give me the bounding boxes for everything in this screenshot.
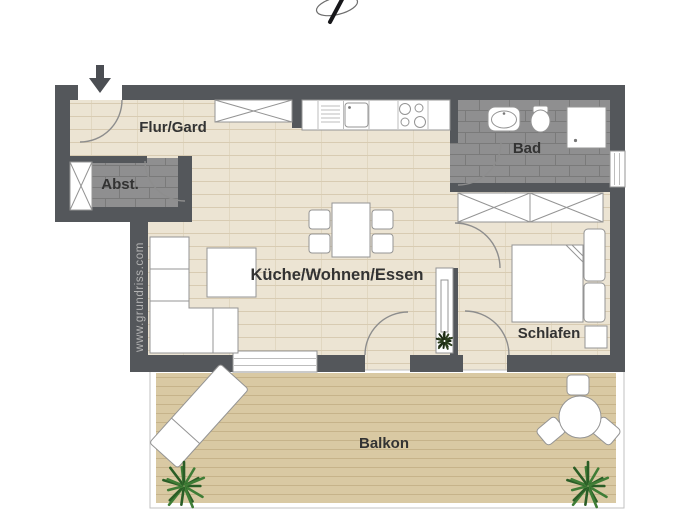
floorplan-canvas: www.grundriss.com Flur/Gard Abst. Bad Kü… (0, 0, 693, 520)
wall-bottom-3 (410, 355, 463, 372)
balcony-table (559, 396, 601, 438)
toilet-icon (531, 106, 550, 132)
wall-top (55, 85, 625, 100)
dining-chair (372, 210, 393, 229)
room-label-wohnen: Küche/Wohnen/Essen (251, 266, 424, 284)
logo-mark-icon (315, 0, 360, 22)
washbasin-icon (488, 107, 520, 131)
nightstand (585, 326, 607, 348)
watermark-text: www.grundriss.com (134, 242, 146, 353)
kitchen-sink-icon (345, 103, 368, 127)
wall-bottom-2 (317, 355, 365, 372)
room-label-schlafen: Schlafen (518, 325, 581, 342)
dining-table (332, 203, 370, 257)
wall-bottom-4 (507, 355, 625, 372)
bedroom-wardrobe (458, 193, 603, 222)
kitchen-counter (302, 100, 450, 130)
bed-pillow (584, 283, 605, 322)
shower-icon (567, 107, 606, 148)
coffee-table (207, 248, 256, 297)
wall-right (610, 85, 625, 372)
dining-chair (309, 234, 330, 253)
wall-left-upper (55, 85, 70, 222)
room-label-bad: Bad (513, 140, 541, 157)
room-label-flur: Flur/Gard (139, 119, 207, 136)
dining-chair (309, 210, 330, 229)
room-label-balkon: Balkon (359, 435, 409, 452)
wall-bath-bottom (450, 183, 610, 192)
storage-cabinet (70, 162, 92, 210)
living-window (233, 351, 317, 372)
bath-window (610, 151, 625, 187)
balcony-chair (567, 375, 589, 395)
dining-chair (372, 234, 393, 253)
wall-storage-right (178, 156, 192, 211)
wall-bath-left (450, 98, 458, 143)
hall-wardrobe (215, 100, 292, 122)
bed (512, 245, 583, 322)
bed-pillow (584, 229, 605, 281)
floorplan-drawing: www.grundriss.com Flur/Gard Abst. Bad Kü… (0, 0, 693, 520)
room-label-abst: Abst. (101, 176, 139, 193)
wall-counter-pier (292, 100, 302, 128)
